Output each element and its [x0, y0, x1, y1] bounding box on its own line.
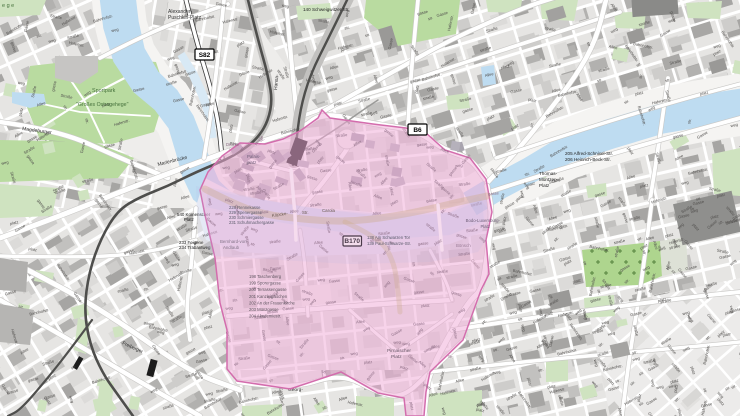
svg-text:B170: B170	[344, 238, 360, 245]
svg-text:203 Münzgasse: 203 Münzgasse	[249, 307, 279, 312]
svg-text:weg: weg	[215, 211, 223, 217]
svg-text:Allee: Allee	[431, 343, 441, 349]
svg-text:206 Heinrich-Beck-Str.: 206 Heinrich-Beck-Str.	[565, 157, 611, 162]
svg-text:Müntzer-: Müntzer-	[539, 177, 558, 182]
svg-text:138 Am Schwarzen Tor: 138 Am Schwarzen Tor	[367, 235, 411, 240]
svg-text:weg: weg	[455, 163, 463, 169]
svg-text:Platz: Platz	[480, 224, 490, 229]
svg-text:Platz: Platz	[539, 183, 550, 188]
svg-text:200 Terrassengasse: 200 Terrassengasse	[249, 287, 287, 292]
svg-text:140 Schweigwitzer Str.: 140 Schweigwitzer Str.	[303, 7, 349, 12]
svg-text:str.: str.	[340, 355, 346, 361]
svg-text:Platz: Platz	[184, 217, 194, 222]
svg-text:weg: weg	[402, 341, 410, 347]
svg-text:platz: platz	[421, 302, 430, 308]
svg-text:weg: weg	[222, 165, 230, 171]
svg-text:Platz: Platz	[391, 354, 402, 360]
svg-text:Carola: Carola	[322, 208, 335, 213]
svg-text:199 Sporergasse: 199 Sporergasse	[249, 281, 282, 286]
svg-text:139 Paul-Schwarze-Str.: 139 Paul-Schwarze-Str.	[367, 241, 411, 246]
svg-text:205 Alfred-Schnixel-Str.: 205 Alfred-Schnixel-Str.	[565, 151, 613, 156]
svg-text:weg: weg	[225, 305, 233, 311]
svg-text:Str.: Str.	[302, 210, 309, 215]
svg-text:weg: weg	[350, 351, 358, 357]
svg-text:Sportpark: Sportpark	[92, 88, 116, 94]
svg-text:e g e: e g e	[2, 3, 14, 9]
svg-text:Allee: Allee	[289, 208, 299, 214]
svg-text:Allee: Allee	[356, 319, 366, 325]
svg-text:Allee: Allee	[372, 210, 382, 216]
svg-text:weg: weg	[426, 144, 434, 150]
svg-text:Thomas-: Thomas-	[539, 171, 558, 176]
svg-text:str.: str.	[232, 297, 238, 303]
svg-text:Bodo-Luxemburg-: Bodo-Luxemburg-	[466, 218, 501, 223]
svg-text:202 An der Frauenkirche: 202 An der Frauenkirche	[249, 300, 296, 305]
svg-text:weg: weg	[393, 339, 401, 345]
svg-text:Allee: Allee	[314, 239, 324, 245]
svg-text:platz: platz	[247, 160, 256, 165]
svg-text:Andlaub: Andlaub	[223, 245, 240, 250]
svg-text:Puschkin-Platz: Puschkin-Platz	[168, 15, 202, 21]
svg-text:231 Schuhmachergasse: 231 Schuhmachergasse	[229, 220, 275, 225]
svg-text:B6: B6	[413, 127, 422, 134]
svg-text:str.: str.	[387, 245, 393, 251]
svg-text:S82: S82	[199, 52, 211, 59]
svg-text:str.: str.	[411, 261, 417, 267]
svg-text:201 Kanzleigäßchen: 201 Kanzleigäßchen	[249, 294, 288, 299]
svg-text:Drucke: Drucke	[226, 142, 240, 147]
svg-text:Palais-: Palais-	[247, 154, 261, 159]
svg-text:204 Akademiestr.: 204 Akademiestr.	[249, 314, 281, 319]
svg-text:Pirnaischer: Pirnaischer	[387, 348, 411, 354]
svg-text:weg: weg	[317, 277, 325, 283]
svg-text:"Großes Ostragehege": "Großes Ostragehege"	[76, 102, 129, 108]
svg-text:Bernhard-von-: Bernhard-von-	[220, 239, 249, 244]
svg-text:198 Taschenberg: 198 Taschenberg	[249, 274, 282, 279]
svg-text:platz: platz	[364, 359, 373, 365]
